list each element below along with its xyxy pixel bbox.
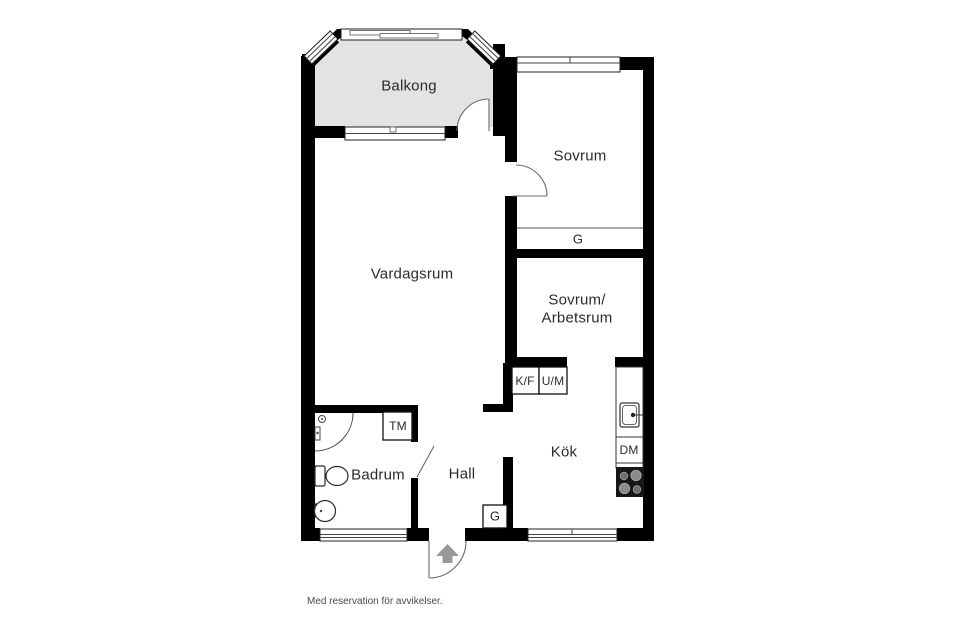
room-label-vardagsrum: Vardagsrum: [371, 266, 454, 283]
bathroom-sink-drain: [320, 510, 322, 512]
bathroom-sink-icon: [315, 501, 336, 522]
stove-burner: [619, 483, 629, 493]
wall-segment: [505, 57, 517, 162]
doors: [417, 99, 547, 578]
room-label-badrum: Badrum: [351, 467, 405, 484]
wall-segment: [620, 57, 644, 70]
room-label-hall: Hall: [449, 466, 476, 483]
stove-burner: [620, 472, 628, 480]
sovrum-window: [517, 57, 620, 72]
wall-segment: [411, 478, 418, 534]
wall-segment: [505, 357, 567, 367]
label-oven-microwave: U/M: [542, 374, 565, 388]
wall-segment: [301, 528, 320, 541]
wall-segment: [617, 528, 654, 541]
wall-segment: [643, 57, 654, 541]
label-wardrobe-hall: G: [490, 509, 500, 524]
room-label-sovrum-arbetsrum-line1: Sovrum/: [548, 292, 605, 309]
wall-segment: [465, 528, 528, 541]
balcony-window-pane: [380, 34, 438, 39]
bathroom-fixtures: [315, 413, 354, 522]
shower-head-dot: [321, 418, 323, 420]
vardagsrum-window-tick: [390, 127, 396, 132]
badrum-door-leaf: [417, 446, 434, 477]
sovrum-door-arc: [516, 165, 547, 196]
label-dishwasher: DM: [619, 443, 638, 457]
label-washing-machine: TM: [389, 419, 407, 433]
wall-segment: [445, 126, 458, 138]
room-label-sovrum: Sovrum: [554, 148, 607, 165]
floorplan-drawing: [0, 0, 960, 640]
wall-segment: [315, 126, 345, 138]
wall-segment: [505, 196, 517, 363]
room-label-kok: Kök: [551, 444, 577, 461]
wall-segment: [301, 56, 315, 541]
shower-mixer-dot: [316, 432, 318, 434]
stove-icon: [616, 467, 644, 497]
wall-segment: [483, 404, 513, 412]
label-wardrobe-top: G: [573, 232, 583, 247]
label-fridge-freezer: K/F: [515, 374, 534, 388]
room-label-balkong: Balkong: [381, 78, 437, 95]
disclaimer-text: Med reservation för avvikelser.: [307, 596, 443, 607]
toilet-cistern: [315, 466, 325, 486]
floorplan-page: Balkong Sovrum Vardagsrum Sovrum/ Arbets…: [0, 0, 960, 640]
stove-burner: [633, 486, 641, 494]
wall-segment: [615, 357, 648, 367]
stove-burner: [631, 470, 641, 480]
wall-segment: [505, 249, 643, 258]
toilet-icon: [326, 467, 348, 486]
entry-arrow-icon: [436, 544, 459, 563]
room-label-sovrum-arbetsrum-line2: Arbetsrum: [542, 310, 613, 327]
kitchen-tap-dot: [631, 413, 635, 417]
